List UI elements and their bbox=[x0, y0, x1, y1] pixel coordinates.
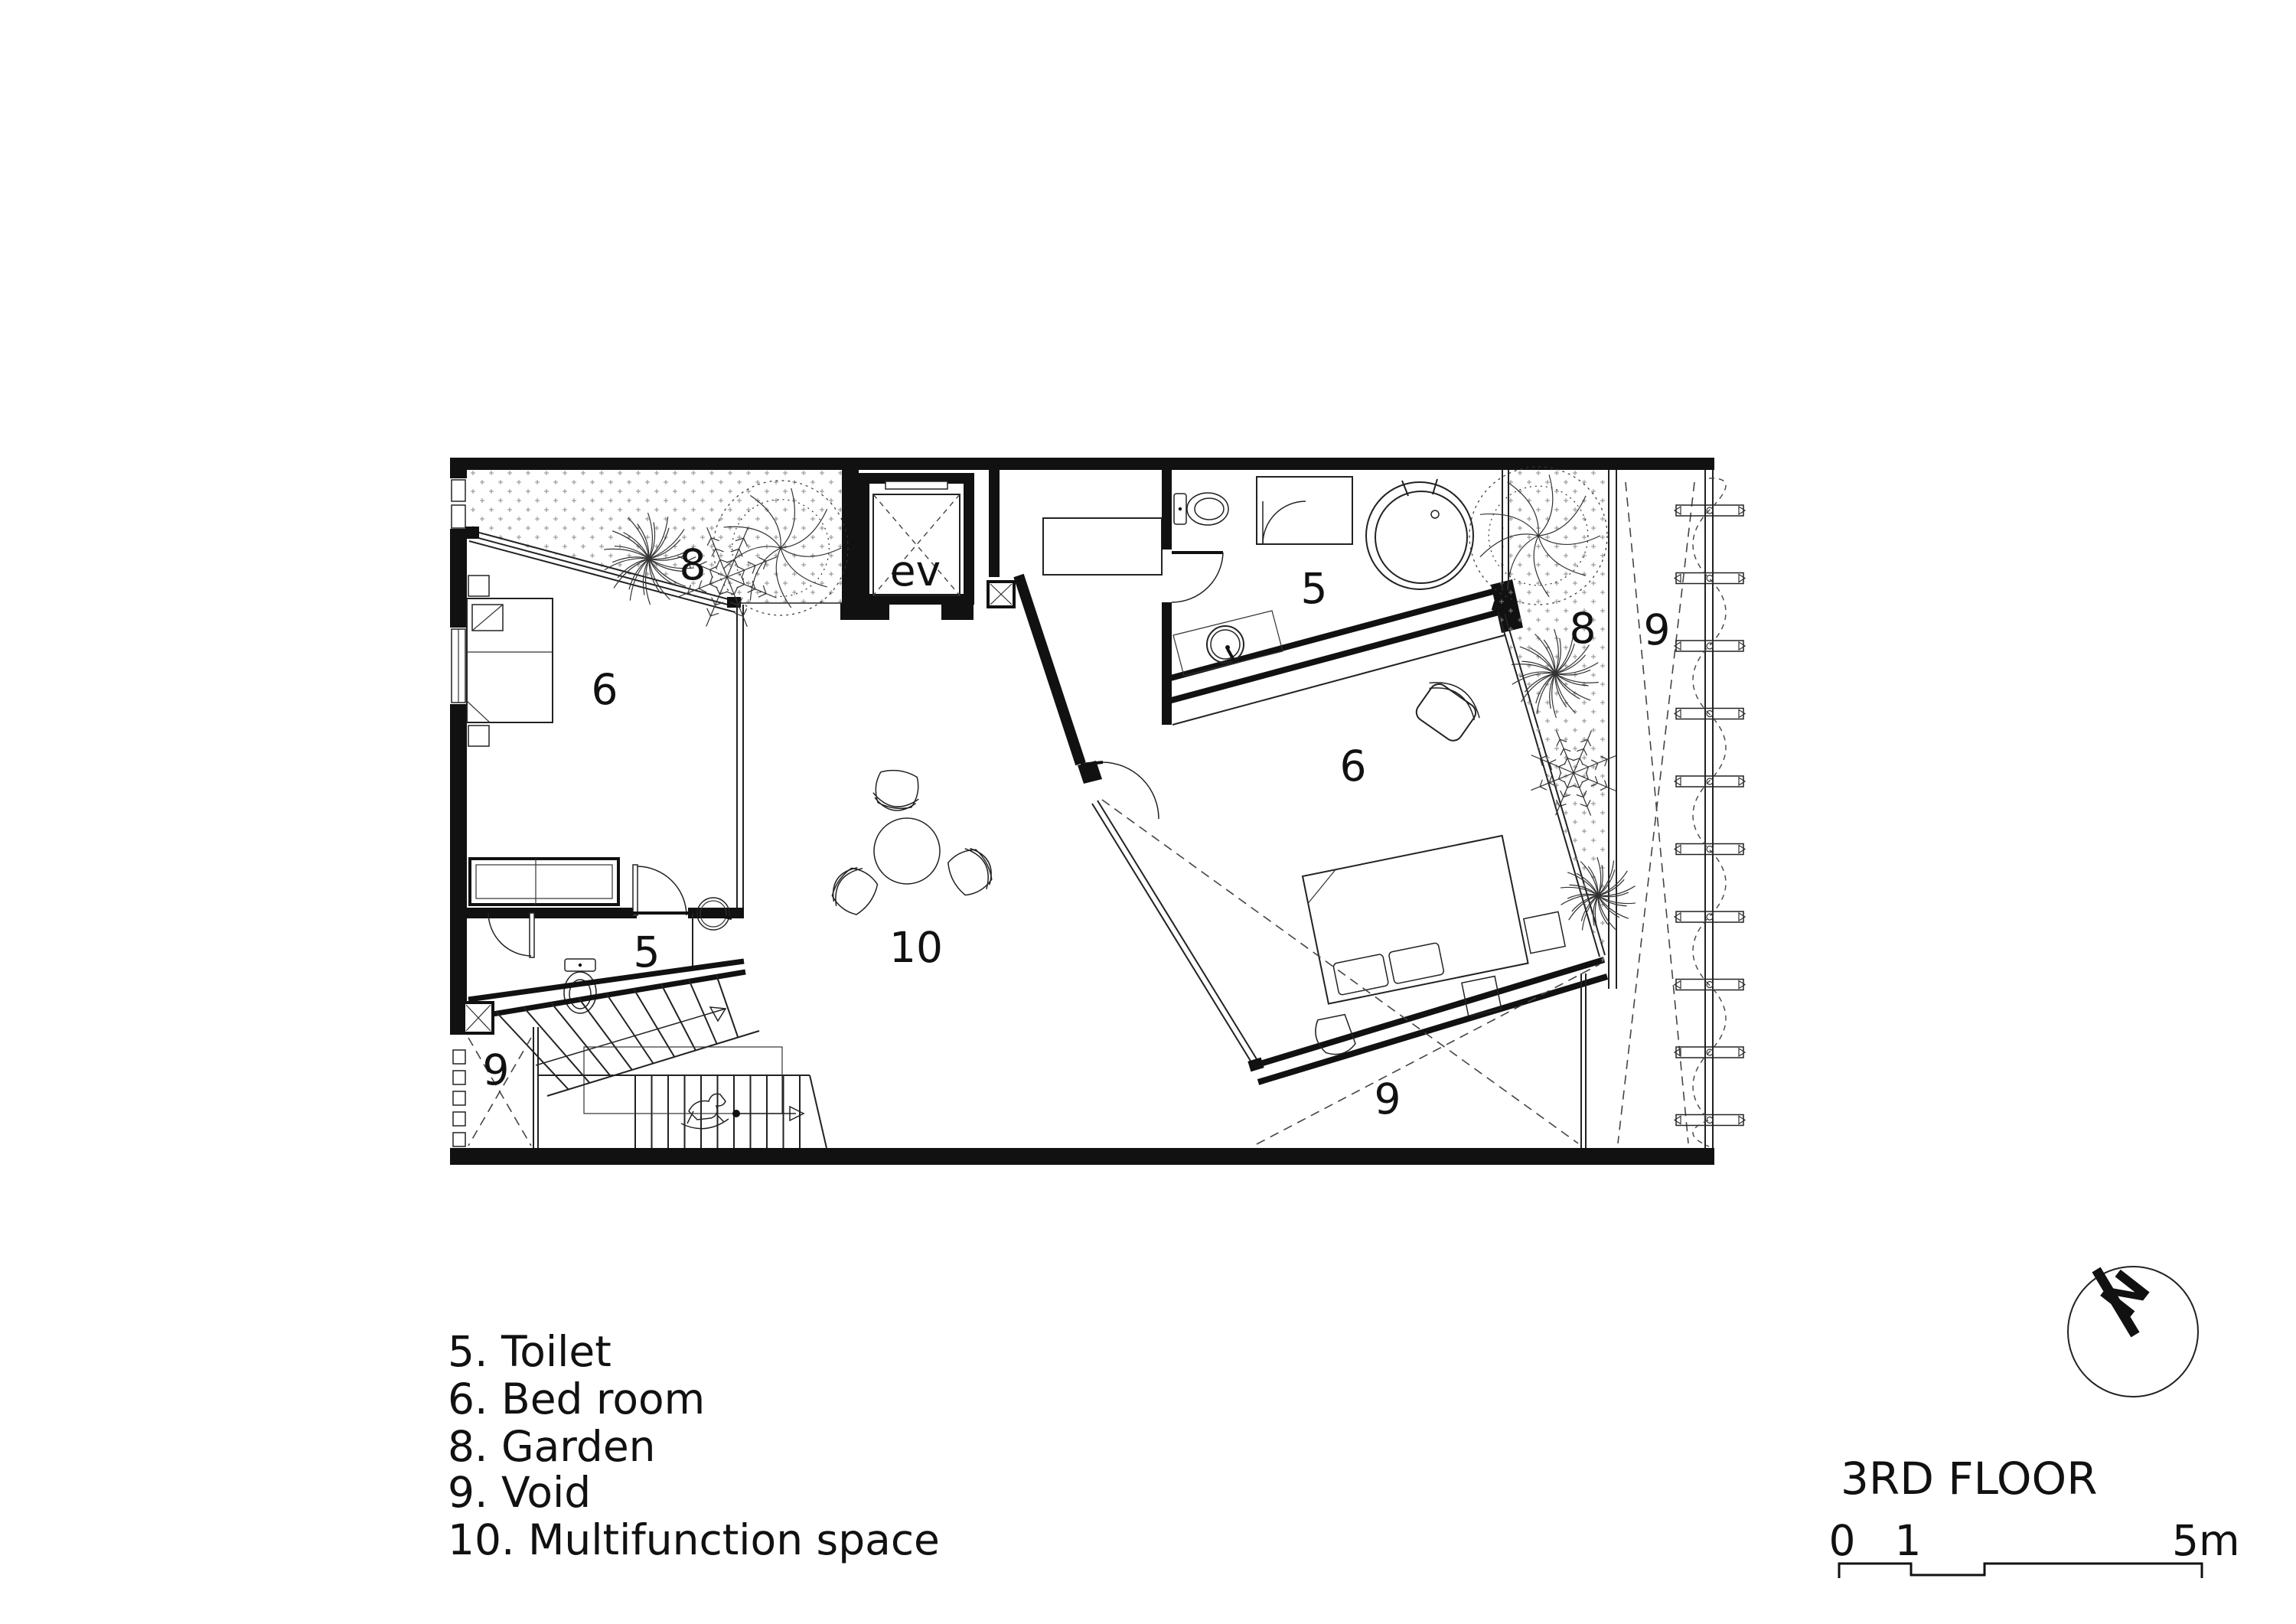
scale-one: 1 bbox=[1895, 1516, 1922, 1565]
label-bedroom-left: 6 bbox=[592, 665, 618, 714]
legend-item-garden: 8. Garden bbox=[448, 1422, 656, 1471]
void-bottom bbox=[1102, 800, 1600, 1148]
bedroom-left bbox=[465, 576, 744, 918]
floor-plan-drawing: 8 6 ev 5 8 9 6 10 5 9 9 5. Toilet 6. Bed… bbox=[0, 0, 2296, 1624]
label-void-left: 9 bbox=[483, 1045, 510, 1094]
title-block: 3RD FLOOR 0 1 5m bbox=[1829, 1453, 2240, 1578]
plan-title: 3RD FLOOR bbox=[1841, 1453, 2098, 1505]
garden-top bbox=[465, 470, 842, 612]
label-garden-right: 8 bbox=[1570, 604, 1596, 653]
label-void-bottom: 9 bbox=[1375, 1075, 1401, 1123]
sink-top bbox=[1173, 611, 1283, 676]
room-labels: 8 6 ev 5 8 9 6 10 5 9 9 bbox=[483, 540, 1671, 1123]
scale-five: 5m bbox=[2172, 1516, 2240, 1565]
legend-item-bedroom: 6. Bed room bbox=[448, 1375, 705, 1423]
garden-right bbox=[1499, 470, 1616, 989]
legend-item-void: 9. Void bbox=[448, 1468, 591, 1517]
stair-block bbox=[464, 961, 827, 1148]
multifunction-space bbox=[681, 768, 1000, 1129]
bathroom-top bbox=[1162, 470, 1523, 725]
north-arrow-icon: N bbox=[2068, 1260, 2198, 1397]
legend-item-multifunction: 10. Multifunction space bbox=[448, 1515, 940, 1564]
louver-swing-path bbox=[1693, 478, 1726, 1146]
floor-plan-page: 8 6 ev 5 8 9 6 10 5 9 9 5. Toilet 6. Bed… bbox=[0, 0, 2296, 1624]
scale-bar bbox=[1839, 1564, 2202, 1578]
louver-facade bbox=[1675, 470, 1745, 1148]
legend: 5. Toilet 6. Bed room 8. Garden 9. Void … bbox=[448, 1327, 940, 1564]
bed-right bbox=[1284, 828, 1577, 1058]
bed-left bbox=[467, 576, 553, 746]
void-right-strip bbox=[1618, 482, 1694, 1143]
shower bbox=[1257, 477, 1352, 544]
bathtub bbox=[1366, 479, 1473, 589]
label-garden-top: 8 bbox=[680, 540, 706, 589]
armchair bbox=[1409, 672, 1487, 746]
label-bath-top: 5 bbox=[1301, 564, 1328, 613]
label-bedroom-right: 6 bbox=[1340, 742, 1367, 791]
label-toilet-left: 5 bbox=[634, 928, 660, 977]
scale-zero: 0 bbox=[1829, 1516, 1856, 1565]
label-void-right: 9 bbox=[1644, 605, 1671, 654]
label-elevator: ev bbox=[890, 546, 941, 595]
wardrobe bbox=[470, 859, 618, 905]
label-multifunction: 10 bbox=[889, 923, 943, 972]
legend-item-toilet: 5. Toilet bbox=[448, 1327, 612, 1376]
rocking-horse bbox=[681, 1094, 729, 1128]
elevator bbox=[840, 470, 1162, 819]
